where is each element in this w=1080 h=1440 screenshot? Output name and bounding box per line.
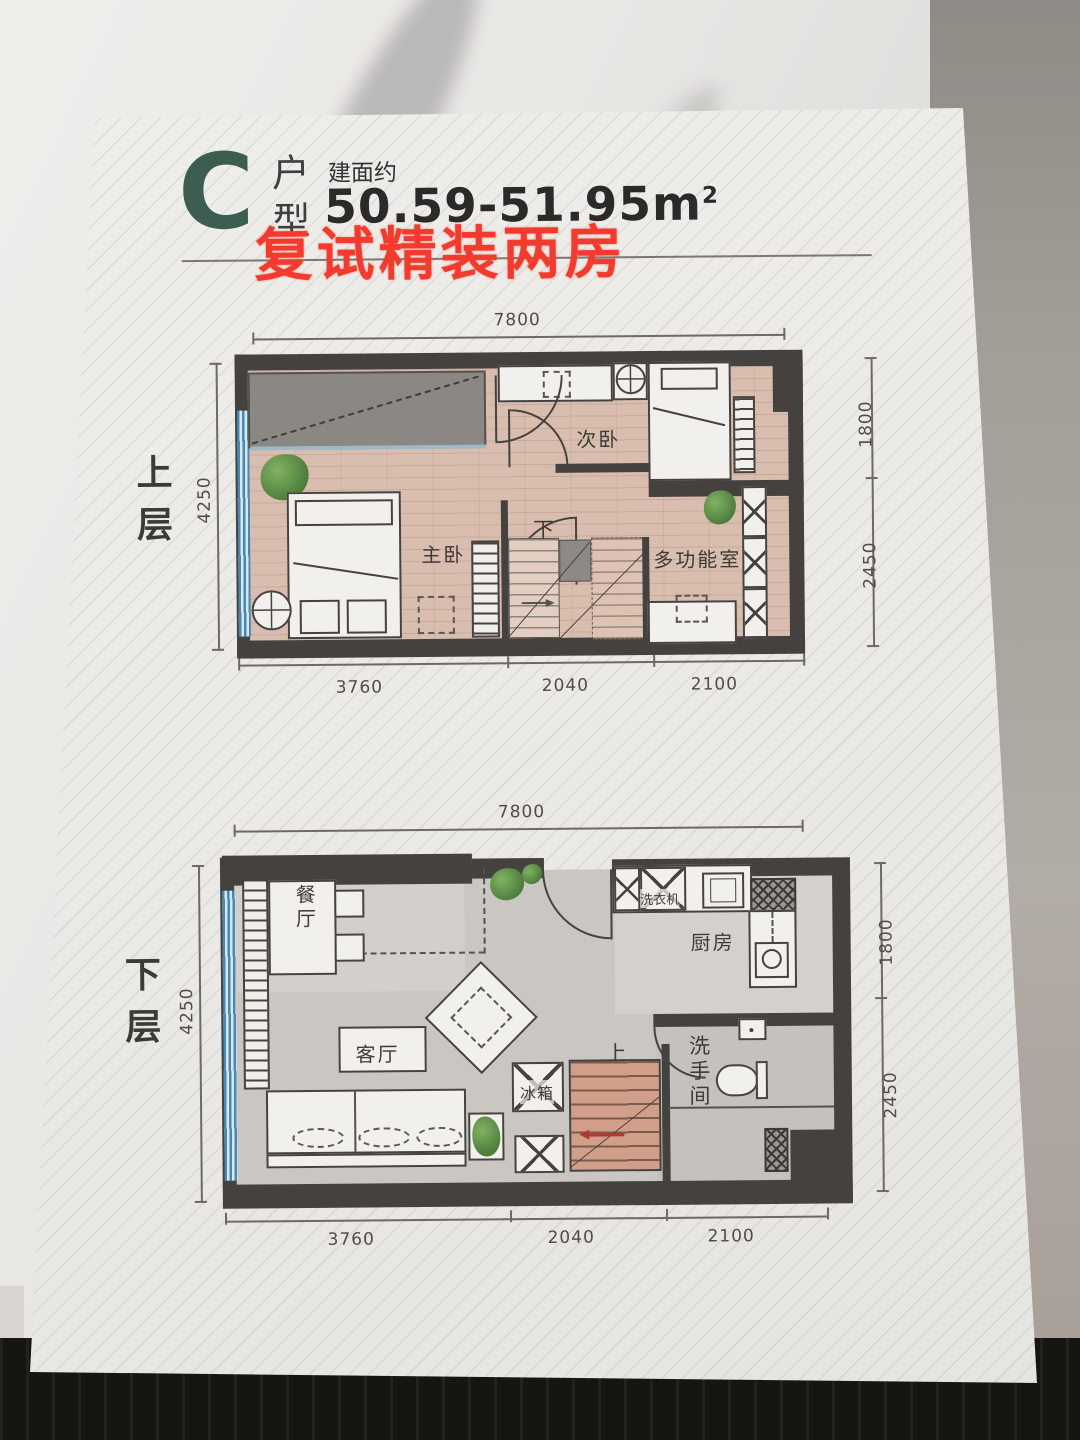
stair-down-label: 下 — [533, 514, 556, 544]
plant-icon — [472, 1116, 500, 1156]
secondary-bed-pillow — [661, 367, 718, 389]
wardrobe-xbox — [742, 486, 767, 537]
dim-tick — [783, 328, 785, 340]
dim-tick — [875, 997, 887, 999]
ceiling-fan-icon — [616, 364, 646, 394]
stove-burner-icon — [762, 949, 782, 969]
dim-tick — [192, 865, 204, 867]
dim-left: 4250 — [177, 981, 198, 1041]
cabinet-xbox — [514, 1135, 564, 1173]
dim-tick — [802, 820, 804, 832]
stair-arrow-shaft — [522, 602, 548, 604]
dim-tick — [507, 656, 509, 668]
area-exponent: 2 — [702, 183, 719, 209]
dim-tick — [866, 477, 878, 479]
kitchen-label: 厨房 — [691, 926, 735, 955]
dining-chair — [335, 934, 365, 962]
dim-line — [198, 865, 203, 1203]
unit-type-char-top: 户 — [272, 154, 310, 192]
upper-floor-side-label: 上层 — [124, 453, 177, 557]
dim-bottom-2: 2040 — [541, 1227, 601, 1248]
basin-drain-dot — [749, 1028, 753, 1032]
bathroom-corner-wall-block — [790, 1129, 836, 1181]
dim-tick — [212, 649, 224, 651]
toilet-tank — [756, 1061, 768, 1099]
paper-content: C 户 型 建面约 50.59-51.95m2 复试精装两房 上层 — [0, 0, 1080, 1440]
stair-arrow-head — [546, 599, 555, 607]
secondary-bedside-shelf — [733, 396, 756, 473]
upper-wall-right — [788, 358, 806, 650]
upper-stair-dashed-flight — [591, 537, 648, 639]
shaft-crosshatch — [750, 878, 796, 912]
bathroom-shaft-crosshatch — [764, 1128, 788, 1172]
dim-tick — [867, 645, 879, 647]
dim-tick — [252, 332, 254, 344]
sofa-base-strip — [266, 1153, 466, 1169]
dim-bottom-3: 2100 — [684, 674, 744, 695]
dim-bottom-2: 2040 — [535, 676, 595, 697]
dim-right-upper: 1800 — [876, 912, 897, 972]
dim-top: 7800 — [487, 310, 547, 331]
master-bed-pillow — [295, 499, 393, 526]
fridge-label: 冰箱 — [520, 1080, 554, 1104]
wardrobe-xbox — [743, 588, 768, 638]
dim-tick — [225, 1213, 227, 1225]
dim-tick — [877, 1190, 889, 1192]
round-table-icon — [252, 590, 292, 630]
dim-top: 7800 — [491, 802, 551, 823]
dim-tick — [827, 1208, 829, 1220]
dim-right-upper: 1800 — [856, 394, 877, 454]
partition-wall-hall — [555, 463, 650, 473]
stair-up-label: 上 — [605, 1037, 628, 1067]
dining-cabinet-strip — [242, 877, 270, 1089]
dim-line — [225, 1216, 827, 1223]
dim-tick — [210, 363, 222, 365]
dim-tick — [803, 654, 805, 666]
lower-floor-side-label: 下层 — [113, 955, 166, 1059]
lower-wall-bottom — [223, 1179, 853, 1208]
dim-tick — [510, 1210, 512, 1222]
lower-window-glazing — [222, 891, 238, 1181]
washing-machine-label: 洗衣机 — [640, 889, 679, 908]
multi-room-label: 多功能室 — [653, 543, 741, 573]
dim-tick — [195, 1201, 207, 1203]
dim-right-lower: 2450 — [860, 535, 881, 595]
dim-line — [238, 660, 805, 667]
dim-line — [252, 334, 785, 341]
secondary-bedroom-label: 次卧 — [576, 423, 620, 452]
dim-tick — [238, 659, 240, 671]
dim-bottom-1: 3760 — [321, 1229, 381, 1250]
bathroom-label: 洗手间 — [683, 1035, 714, 1110]
master-bed-ottoman-left — [300, 600, 340, 634]
dim-tick — [865, 357, 877, 359]
dim-tick — [234, 825, 236, 837]
dim-line — [216, 363, 221, 651]
dim-left: 4250 — [195, 470, 216, 530]
counter-dashed-line — [771, 912, 773, 942]
dim-tick — [666, 1209, 668, 1221]
lower-stair-treads — [569, 1059, 662, 1172]
master-bedroom-label: 主卧 — [421, 539, 465, 568]
kitchen-cabinet-xbox — [614, 867, 640, 911]
upper-stair-treads — [508, 538, 560, 638]
toilet-icon — [716, 1064, 758, 1096]
dining-chair — [334, 890, 364, 918]
stair-red-arrow-head — [579, 1130, 589, 1140]
dim-right-lower: 2450 — [881, 1065, 902, 1125]
dining-label: 餐厅 — [290, 884, 319, 932]
master-bed-ottoman-right — [347, 599, 387, 633]
desk-chair-dashed — [676, 595, 708, 623]
dim-tick — [874, 862, 886, 864]
overlay-marketing-text: 复试精装两房 — [254, 223, 627, 284]
unit-type-letter: C — [178, 142, 255, 241]
dim-bottom-1: 3760 — [329, 677, 389, 698]
wardrobe-shelf — [471, 540, 500, 637]
dim-line — [234, 826, 804, 833]
wardrobe-xbox — [742, 537, 767, 588]
stair-red-arrow-shaft — [588, 1133, 624, 1136]
living-label: 客厅 — [355, 1038, 399, 1067]
master-stool-dashed — [418, 596, 455, 634]
dim-tick — [653, 655, 655, 667]
kitchen-sink-basin — [710, 878, 736, 902]
photo-of-floorplan-flyer: C 户 型 建面约 50.59-51.95m2 复试精装两房 上层 — [0, 0, 1080, 1440]
dim-bottom-3: 2100 — [701, 1226, 761, 1247]
